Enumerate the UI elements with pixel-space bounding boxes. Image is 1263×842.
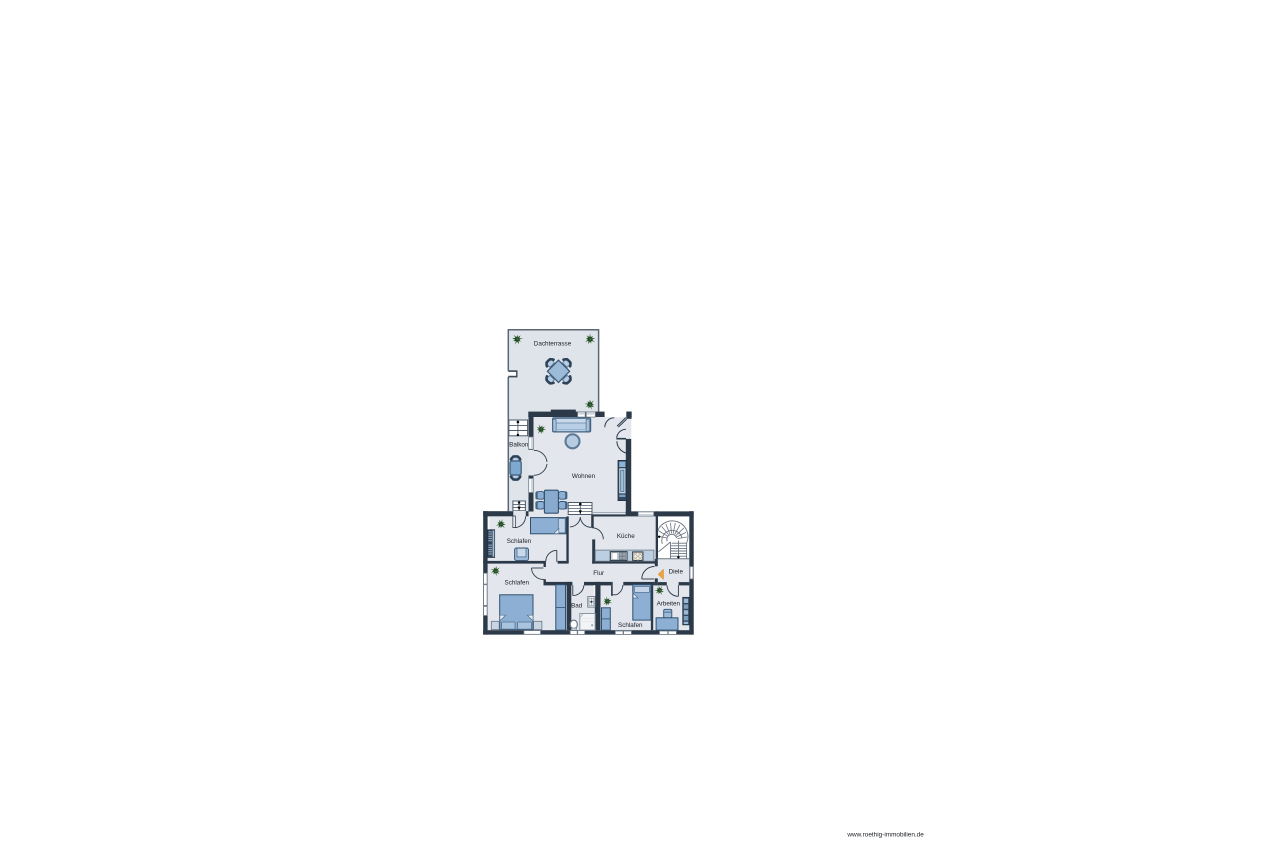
svg-text:Diele: Diele [669, 569, 684, 576]
svg-text:Schlafen: Schlafen [507, 538, 532, 545]
svg-text:Küche: Küche [617, 533, 635, 540]
svg-text:Flur: Flur [593, 570, 604, 577]
svg-text:Arbeiten: Arbeiten [657, 601, 681, 608]
svg-text:Schlafen: Schlafen [618, 622, 643, 629]
svg-text:Dachterrasse: Dachterrasse [534, 341, 572, 348]
svg-text:Schlafen: Schlafen [505, 580, 530, 587]
svg-text:Balkon: Balkon [509, 442, 529, 449]
svg-text:Bad: Bad [571, 603, 583, 610]
svg-text:Wohnen: Wohnen [572, 473, 596, 480]
svg-text:www.roethig-immobilien.de: www.roethig-immobilien.de [846, 831, 924, 838]
